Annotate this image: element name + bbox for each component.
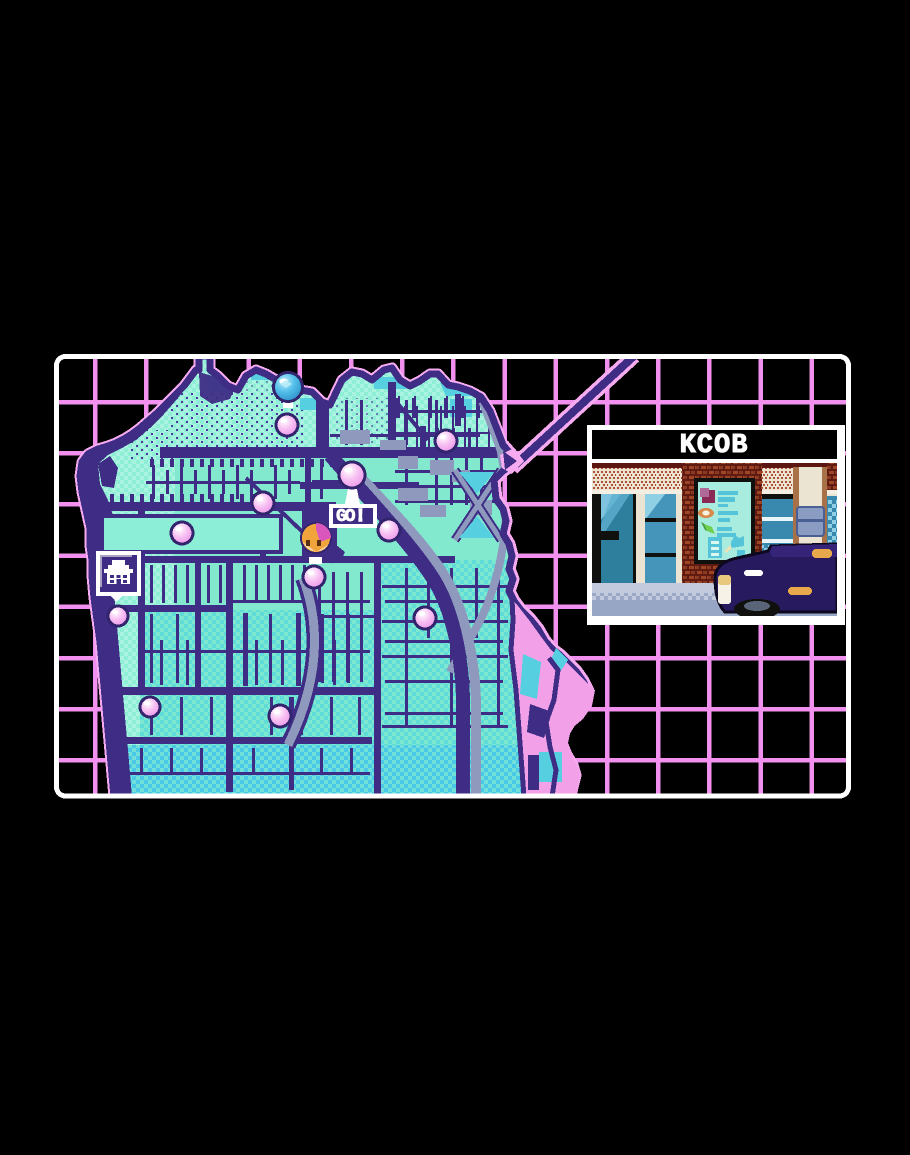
svg-text:GO: GO	[336, 507, 356, 527]
svg-text:!: !	[355, 507, 366, 527]
svg-text:KCOB: KCOB	[680, 431, 749, 461]
